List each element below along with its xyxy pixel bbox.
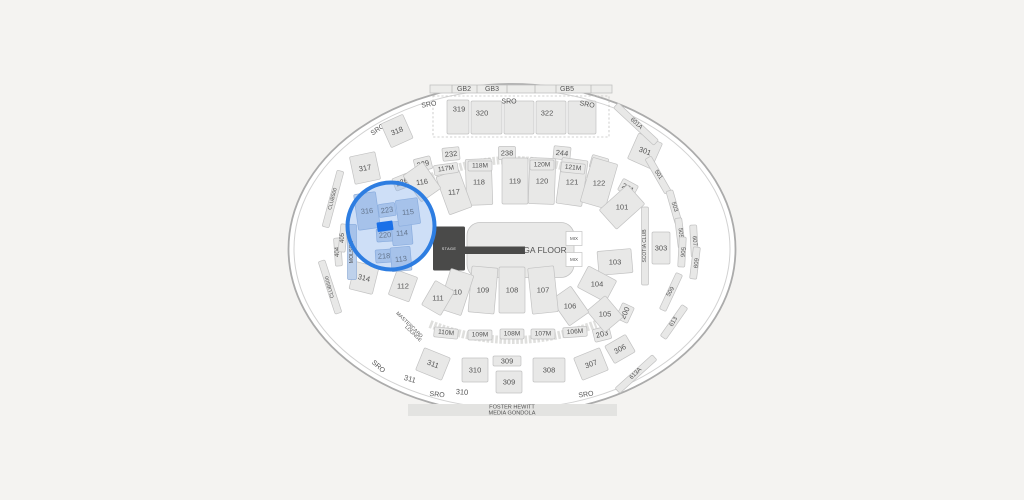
section-317[interactable]: 317 <box>349 152 380 185</box>
section-scotia-club[interactable]: SCOTIA CLUB <box>642 207 649 285</box>
section-303[interactable]: 303 <box>652 232 670 264</box>
svg-text:106: 106 <box>564 302 577 311</box>
svg-text:107: 107 <box>537 286 550 295</box>
seat-map: GB2 GB3 GB5 STAGE GA FLOOR MIX MIX FOSTE… <box>0 0 1024 500</box>
svg-text:244: 244 <box>555 148 568 158</box>
section-109[interactable]: 109 <box>468 266 498 314</box>
section-310: 310 <box>455 387 468 397</box>
svg-text:309: 309 <box>503 378 516 387</box>
section-506[interactable]: 506 <box>678 237 687 267</box>
svg-text:506: 506 <box>679 247 686 258</box>
svg-text:SRO: SRO <box>501 99 517 106</box>
svg-text:106M: 106M <box>567 328 584 336</box>
svg-text:320: 320 <box>476 109 489 118</box>
svg-text:117: 117 <box>448 187 461 197</box>
section-319: 319 <box>453 105 466 114</box>
section-107m[interactable]: 107M <box>531 329 555 339</box>
svg-text:101: 101 <box>616 203 629 212</box>
svg-text:109M: 109M <box>472 332 489 339</box>
svg-text:103: 103 <box>609 258 622 267</box>
section-310[interactable]: 310 <box>462 358 488 382</box>
section-118m[interactable]: 118M <box>468 161 492 171</box>
section-sro: SRO <box>501 99 517 106</box>
svg-text:104: 104 <box>591 280 604 289</box>
gb2-label: GB2 <box>457 86 471 93</box>
svg-text:232: 232 <box>444 149 457 159</box>
section-block-322[interactable] <box>536 101 566 134</box>
svg-text:607: 607 <box>691 236 698 247</box>
svg-text:119: 119 <box>509 177 521 186</box>
mix-label-top: MIX <box>570 236 578 241</box>
svg-text:609: 609 <box>692 258 699 269</box>
svg-text:112: 112 <box>397 282 409 291</box>
ga-floor-label: GA FLOOR <box>523 245 566 255</box>
svg-text:322: 322 <box>541 109 554 118</box>
svg-text:308: 308 <box>543 366 556 375</box>
svg-text:108M: 108M <box>504 331 521 338</box>
section-107[interactable]: 107 <box>528 266 559 314</box>
svg-text:310: 310 <box>469 366 482 375</box>
svg-text:120M: 120M <box>534 162 551 169</box>
section-308[interactable]: 308 <box>533 358 565 382</box>
section-108[interactable]: 108 <box>499 267 525 313</box>
section-block-320[interactable] <box>471 101 502 134</box>
gondola-line2: MEDIA GONDOLA <box>489 411 536 417</box>
svg-text:118: 118 <box>473 178 485 187</box>
svg-text:109: 109 <box>477 286 490 295</box>
section-320: 320 <box>476 109 489 118</box>
svg-text:SCOTIA CLUB: SCOTIA CLUB <box>642 229 648 263</box>
section-109m[interactable]: 109M <box>468 330 492 340</box>
section-232[interactable]: 232 <box>442 147 460 162</box>
svg-text:105: 105 <box>599 310 612 319</box>
svg-text:107M: 107M <box>535 331 552 338</box>
section-238[interactable]: 238 <box>499 147 516 160</box>
section-106m[interactable]: 106M <box>563 326 588 338</box>
svg-text:238: 238 <box>501 149 514 158</box>
section-119[interactable]: 119 <box>502 158 528 204</box>
gb5-label: GB5 <box>560 86 574 93</box>
svg-text:116: 116 <box>415 177 428 188</box>
section-110m[interactable]: 110M <box>434 327 459 339</box>
svg-text:319: 319 <box>453 105 466 114</box>
svg-text:118M: 118M <box>472 163 488 170</box>
svg-text:120: 120 <box>536 177 549 186</box>
section-309[interactable]: 309 <box>493 356 521 366</box>
section-103[interactable]: 103 <box>597 249 633 276</box>
svg-text:122: 122 <box>593 179 606 188</box>
section-309[interactable]: 309 <box>496 371 522 393</box>
seat-map-page: GB2 GB3 GB5 STAGE GA FLOOR MIX MIX FOSTE… <box>0 0 1024 500</box>
section-120m[interactable]: 120M <box>530 160 554 170</box>
svg-text:310: 310 <box>455 387 468 397</box>
svg-text:309: 309 <box>501 357 514 366</box>
svg-text:111: 111 <box>432 294 443 303</box>
stage-label: STAGE <box>442 247 457 251</box>
section-108m[interactable]: 108M <box>500 329 524 339</box>
section-block-top-unlabeled-1[interactable] <box>504 101 534 134</box>
gb3-label: GB3 <box>485 86 499 93</box>
mix-label-bottom: MIX <box>570 257 578 262</box>
svg-text:405: 405 <box>340 232 346 243</box>
catwalk-runway <box>465 247 525 255</box>
svg-text:108: 108 <box>506 286 519 295</box>
svg-text:121: 121 <box>566 178 579 187</box>
svg-text:303: 303 <box>655 244 668 253</box>
section-322: 322 <box>541 109 554 118</box>
section-121m[interactable]: 121M <box>561 162 586 174</box>
